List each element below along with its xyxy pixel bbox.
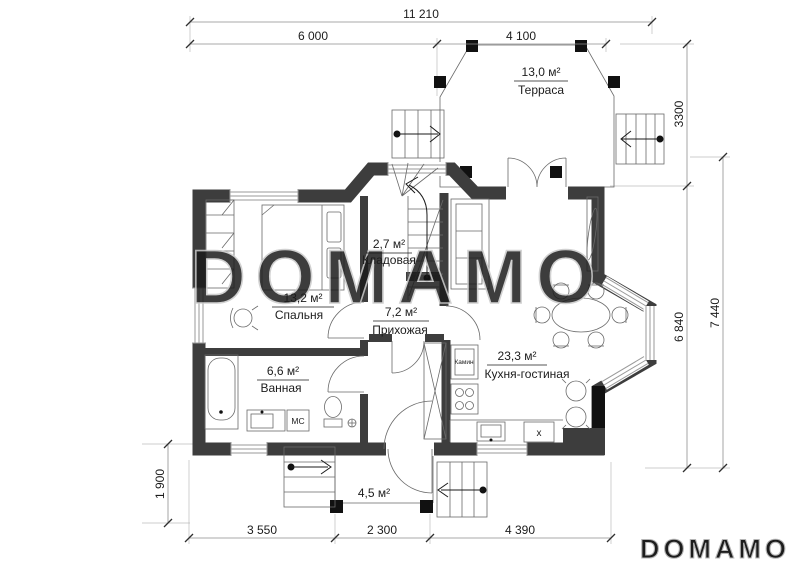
dim-right-terrace: 3300 xyxy=(672,100,686,127)
dim-bottom-porch: 2 300 xyxy=(367,523,397,537)
bar-chairs xyxy=(562,379,590,429)
dim-top-total: 11 210 xyxy=(403,7,439,21)
dim-right-total: 7 440 xyxy=(708,298,722,328)
bathroom-area-label: 6,6 м² xyxy=(267,364,299,378)
dim-top-terrace: 4 100 xyxy=(506,29,536,43)
porch-steps-left xyxy=(284,447,335,507)
terrace-column xyxy=(575,40,587,52)
stove xyxy=(451,384,478,414)
terrace-name-label: Терраса xyxy=(518,83,564,97)
corner-wall-block xyxy=(563,428,605,455)
brand-logo: DOMAMO xyxy=(640,534,790,564)
terrace-door xyxy=(506,158,568,200)
hallway-name-label: Прихожая xyxy=(372,323,428,337)
bathtub xyxy=(205,355,238,429)
storage-name-label: Кладовая xyxy=(362,253,416,267)
entrance-door xyxy=(384,401,434,493)
bathroom-door xyxy=(328,356,364,392)
bathroom-name-label: Ванная xyxy=(260,381,301,395)
terrace-column xyxy=(466,40,478,52)
kitchen-counter: x xyxy=(450,420,563,442)
terrace-column xyxy=(608,76,620,88)
porch xyxy=(284,447,487,517)
floor-plan-svg: МС xyxy=(0,0,800,566)
dim-right-house: 6 840 xyxy=(672,312,686,342)
washer-label: МС xyxy=(291,416,304,426)
dim-top-left: 6 000 xyxy=(298,29,328,43)
porch-steps-right xyxy=(437,462,487,517)
bay-window-right xyxy=(602,278,657,389)
dim-bottom-right: 4 390 xyxy=(505,523,535,537)
kitchen-name-label: Кухня-гостиная xyxy=(485,367,570,381)
hallway-area-label: 7,2 м² xyxy=(385,305,417,319)
terrace-area-label: 13,0 м² xyxy=(522,65,561,79)
porch-area-label: 4,5 м² xyxy=(358,486,390,500)
toilet xyxy=(324,397,342,428)
floor-plan-canvas: МС xyxy=(0,0,800,566)
terrace-column xyxy=(434,76,446,88)
terrace-steps xyxy=(616,114,664,164)
terrace-column xyxy=(550,166,562,178)
dim-left-porch: 1 900 xyxy=(153,469,167,499)
bathroom-window-bottom xyxy=(231,442,267,456)
kitchen-area-label: 23,3 м² xyxy=(498,349,537,363)
storage-area-label: 2,7 м² xyxy=(373,237,405,251)
stove-mark-label: x xyxy=(537,428,542,439)
bedroom-area-label: 13,2 м² xyxy=(284,291,323,305)
washing-machine: МС xyxy=(287,410,309,431)
floor-drain xyxy=(348,419,356,427)
washbasin xyxy=(247,410,285,431)
bedroom-name-label: Спальня xyxy=(275,308,323,322)
dim-bottom-left: 3 550 xyxy=(247,523,277,537)
storage-door xyxy=(392,341,424,373)
kitchen-window-bottom xyxy=(477,442,527,456)
fireplace-label: Камин xyxy=(454,359,474,366)
back-entry-steps xyxy=(392,110,444,158)
bedroom-window-top xyxy=(230,189,298,203)
fireplace: Камин xyxy=(451,345,478,379)
